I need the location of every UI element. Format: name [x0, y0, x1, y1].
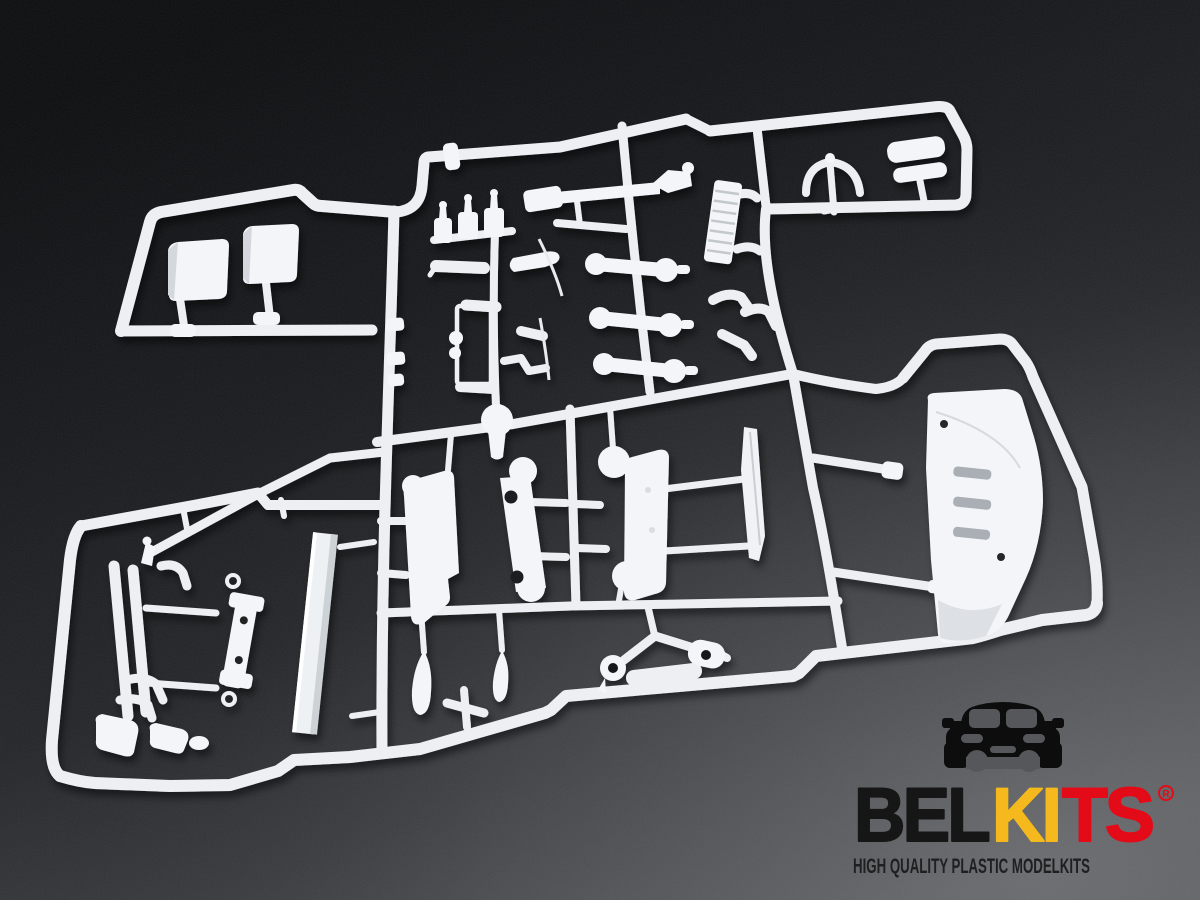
svg-text:BEL: BEL: [854, 773, 989, 858]
svg-text:R: R: [1162, 789, 1170, 800]
svg-text:HIGH QUALITY PLASTIC MODELKITS: HIGH QUALITY PLASTIC MODELKITS: [853, 855, 1090, 878]
svg-text:TS: TS: [1062, 773, 1152, 858]
svg-text:KI: KI: [992, 773, 1059, 858]
